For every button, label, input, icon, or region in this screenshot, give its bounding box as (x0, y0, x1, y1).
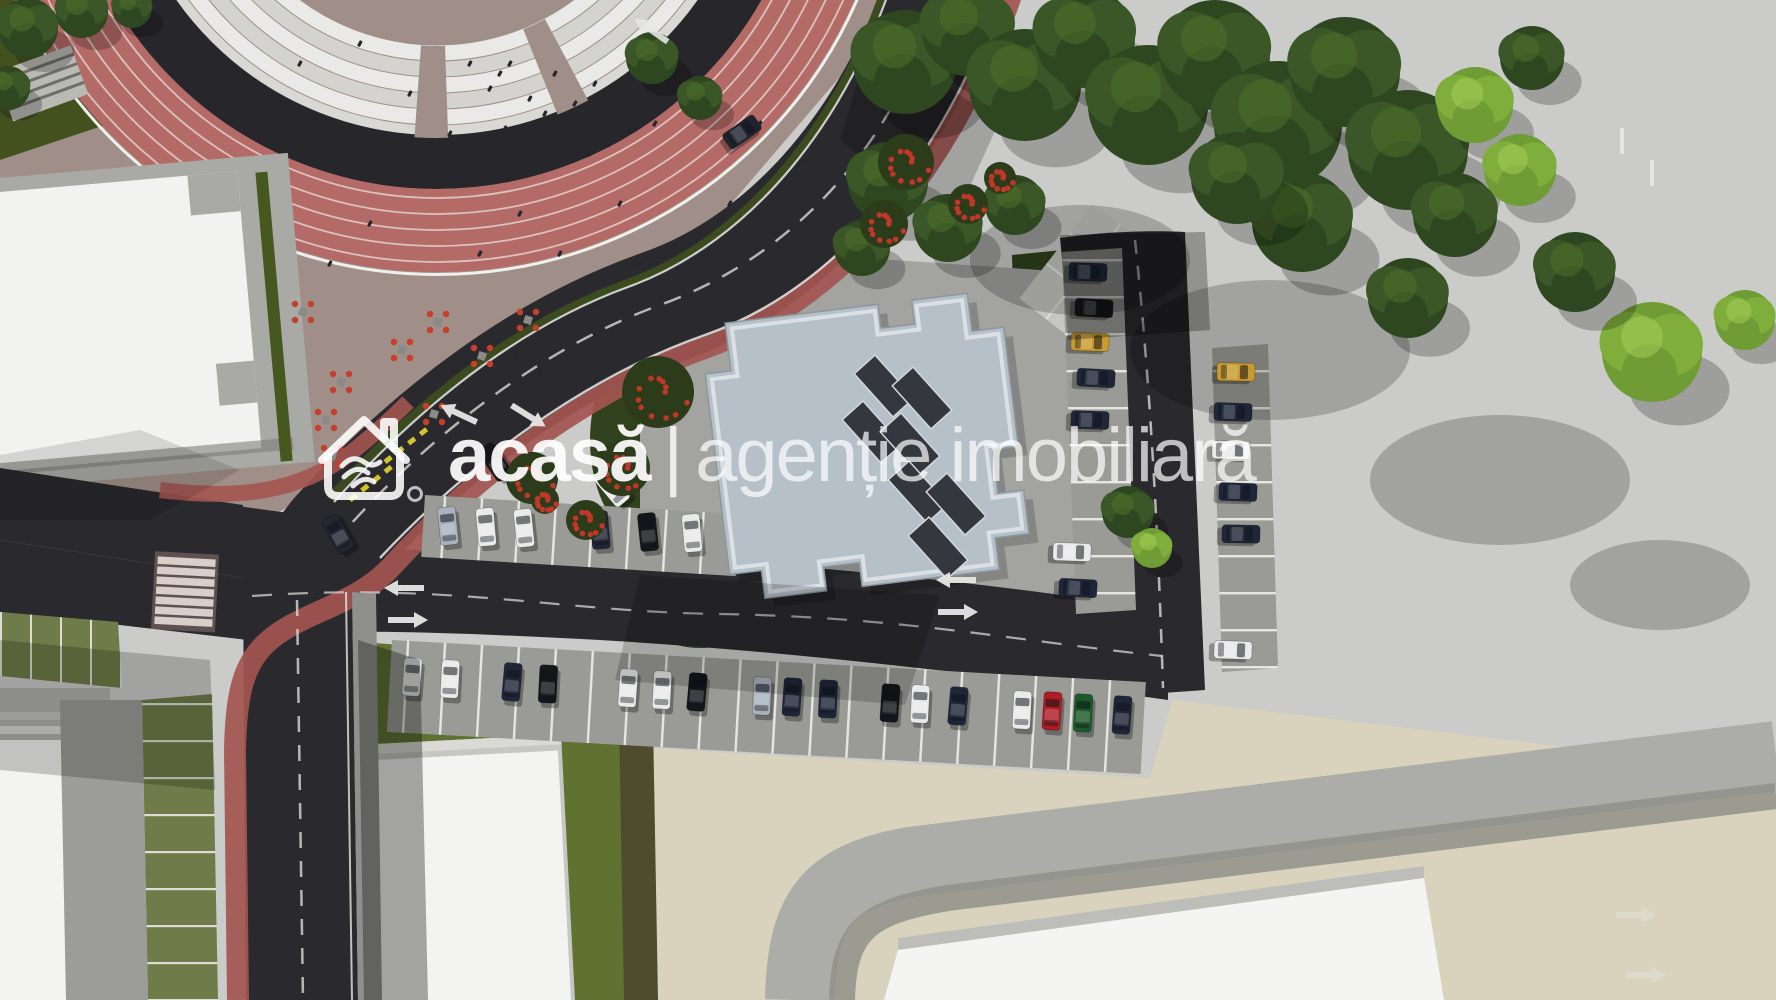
flower-bush (594, 440, 650, 496)
car (1071, 368, 1115, 391)
car (1041, 691, 1065, 735)
car (1209, 640, 1253, 662)
flower-bush (860, 200, 908, 248)
car (681, 513, 706, 558)
car (947, 686, 972, 731)
car (1053, 578, 1097, 601)
car (1209, 402, 1253, 424)
pavement-mark (1650, 160, 1654, 186)
flower-bush (622, 356, 694, 428)
car (910, 685, 933, 729)
flower-bush (984, 162, 1016, 194)
car (1207, 441, 1250, 463)
crosswalk (151, 551, 219, 632)
flower-bush (948, 184, 988, 224)
aerial-site-plan-render: acasă|agenție imobiliară (0, 0, 1776, 1000)
car (1217, 525, 1260, 547)
car (1073, 694, 1096, 738)
car (1012, 691, 1035, 735)
car (1111, 695, 1135, 739)
flower-bush (531, 486, 559, 514)
car (475, 507, 500, 552)
car (538, 665, 561, 709)
car (440, 660, 463, 704)
car (501, 662, 526, 707)
site-plan-canvas (0, 0, 1776, 1000)
flower-bush (566, 500, 606, 540)
car (1048, 542, 1092, 564)
car (1212, 363, 1255, 385)
car (1066, 410, 1110, 432)
pavement-mark (1620, 128, 1624, 154)
car (1214, 482, 1258, 504)
flower-bush (878, 134, 934, 190)
